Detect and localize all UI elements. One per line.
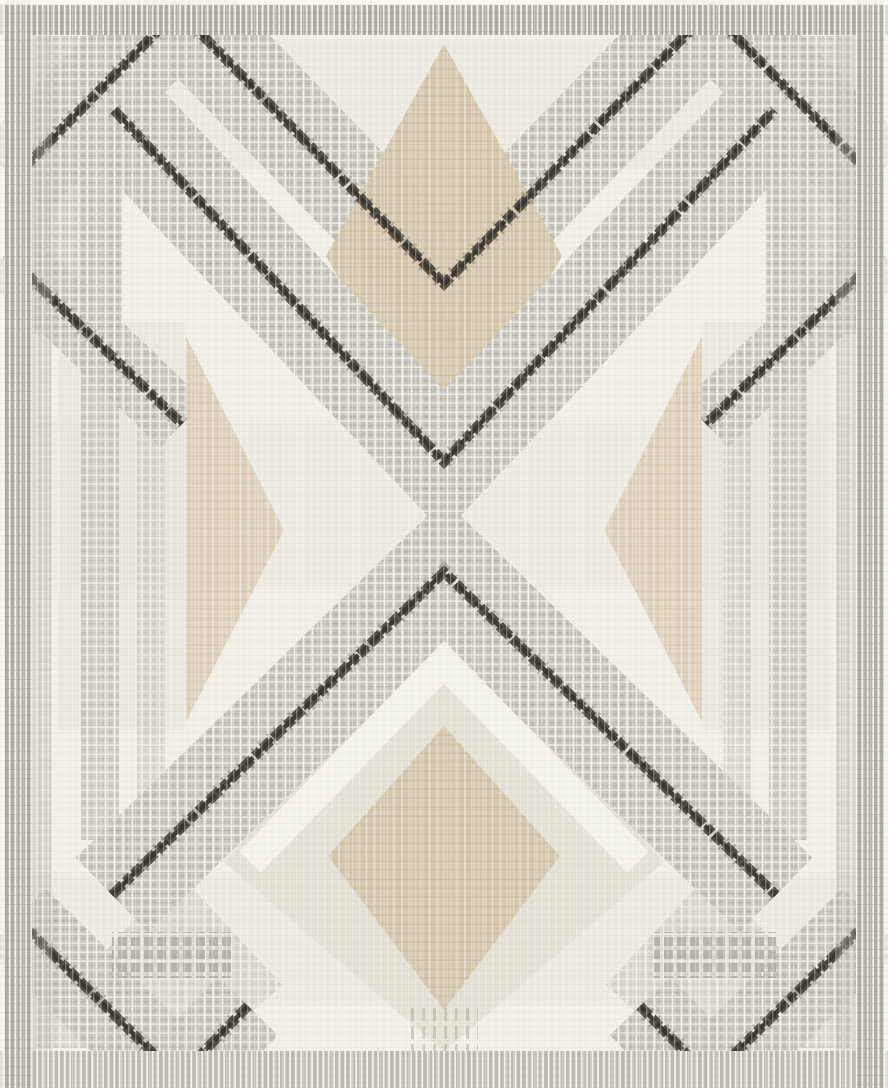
rug-image [0,0,888,1088]
weave-overlay [0,0,888,1088]
rug-product-photo [0,0,888,1088]
